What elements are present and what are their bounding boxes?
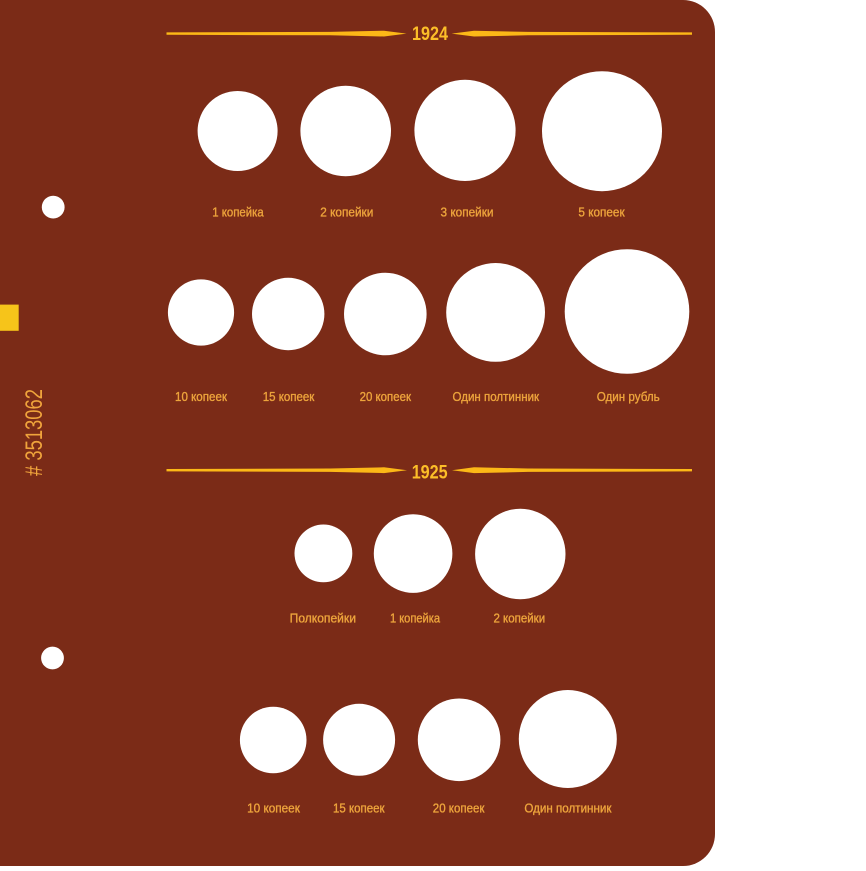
svg-text:2 копейки: 2 копейки	[320, 205, 373, 220]
svg-text:# 3513062: # 3513062	[21, 389, 48, 476]
svg-text:1925: 1925	[412, 462, 448, 483]
svg-text:15 копеек: 15 копеек	[263, 389, 315, 404]
svg-text:1924: 1924	[412, 24, 448, 45]
svg-text:1 копейка: 1 копейка	[212, 205, 264, 220]
svg-text:1 копейка: 1 копейка	[390, 610, 441, 625]
svg-text:5 копеек: 5 копеек	[578, 205, 625, 220]
svg-text:Один рубль: Один рубль	[597, 389, 660, 404]
svg-text:Один полтинник: Один полтинник	[453, 389, 540, 404]
svg-text:Полкопейки: Полкопейки	[290, 610, 356, 625]
svg-text:3 копейки: 3 копейки	[441, 205, 494, 220]
svg-text:20 копеек: 20 копеек	[433, 801, 485, 816]
svg-text:15 копеек: 15 копеек	[333, 801, 385, 816]
svg-text:10 копеек: 10 копеек	[247, 801, 300, 816]
svg-text:Один полтинник: Один полтинник	[524, 801, 611, 816]
svg-text:20 копеек: 20 копеек	[360, 389, 412, 404]
svg-text:10 копеек: 10 копеек	[175, 389, 227, 404]
svg-text:2 копейки: 2 копейки	[493, 610, 545, 625]
